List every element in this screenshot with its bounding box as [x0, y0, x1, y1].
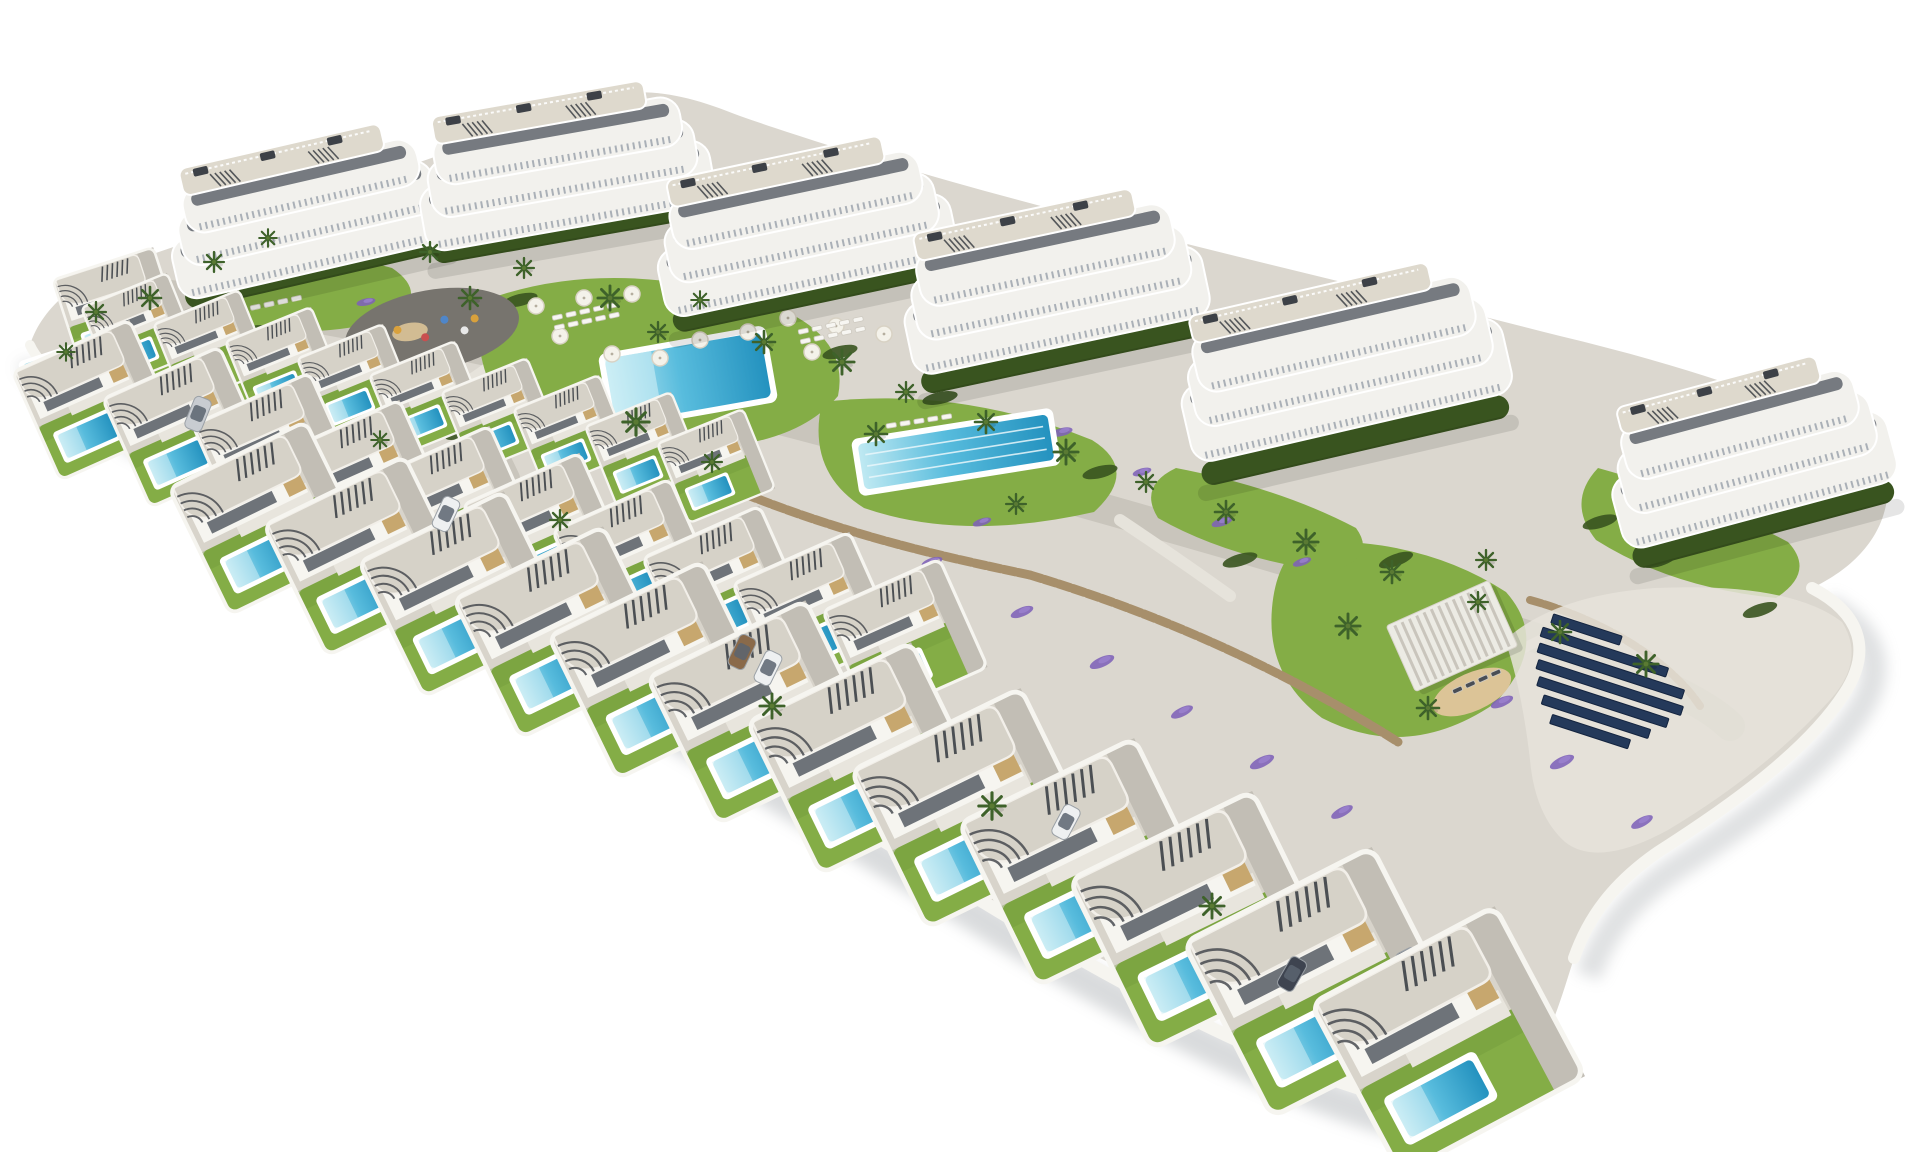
palm-tree [57, 343, 75, 361]
pool-umbrella [604, 346, 620, 362]
pool-umbrella [552, 328, 568, 344]
pool-umbrella [624, 286, 640, 302]
palm-tree [420, 242, 440, 262]
palm-tree [1136, 472, 1156, 492]
palm-tree [1215, 501, 1237, 523]
palm-tree [204, 252, 224, 272]
palm-tree [1417, 697, 1439, 719]
pool-umbrella [528, 298, 544, 314]
development-aerial-render [0, 0, 1920, 1152]
palm-tree [139, 287, 161, 309]
palm-tree [1336, 614, 1360, 638]
pool-umbrella [652, 350, 668, 366]
aerial-render-page [0, 0, 1920, 1152]
palm-tree [865, 423, 887, 445]
palm-tree [1549, 621, 1571, 643]
palm-tree [1006, 494, 1026, 514]
palm-tree [830, 350, 854, 374]
pool-umbrella [876, 326, 892, 342]
palm-tree [86, 302, 106, 322]
pool-umbrella [804, 344, 820, 360]
palm-tree [1054, 440, 1078, 464]
palm-tree [459, 287, 481, 309]
palm-tree [975, 411, 997, 433]
palm-tree [1381, 561, 1403, 583]
palm-tree [760, 694, 784, 718]
palm-tree [371, 431, 389, 449]
palm-tree [514, 258, 534, 278]
palm-tree [896, 382, 916, 402]
palm-tree [623, 409, 649, 435]
palm-tree [1634, 652, 1658, 676]
palm-tree [1468, 592, 1488, 612]
palm-tree [598, 286, 622, 310]
palm-tree [550, 510, 570, 530]
palm-tree [1200, 894, 1224, 918]
palm-tree [259, 229, 277, 247]
palm-tree [1294, 530, 1318, 554]
palm-tree [648, 322, 668, 342]
palm-tree [979, 793, 1005, 819]
palm-tree [753, 331, 775, 353]
palm-tree [691, 291, 709, 309]
pool-umbrella [576, 290, 592, 306]
palm-tree [1476, 550, 1496, 570]
palm-tree [702, 452, 722, 472]
